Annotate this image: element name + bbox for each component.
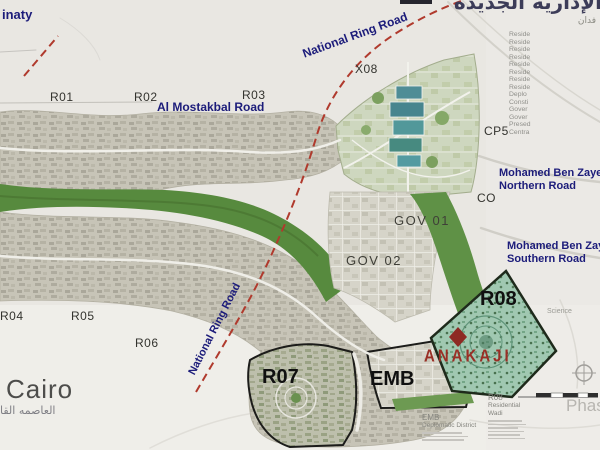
micro-text-line [488, 431, 524, 433]
micro-text-line [488, 427, 518, 429]
road-label-mbz-northern: Mohamed Ben Zayed Northern Road [499, 167, 600, 193]
district-label-r07: R07 [262, 366, 299, 389]
micro-text-line [488, 434, 520, 436]
road-label-line: Mohamed Ben Zayed [507, 240, 600, 253]
district-label-cp5: CP5 [484, 124, 509, 138]
micro-text-line [422, 436, 468, 438]
legend-item: Gover [509, 106, 599, 114]
cairo-label: Cairo [6, 374, 73, 405]
micro-text-line [422, 432, 462, 434]
district-label-r08: R08 [480, 288, 517, 311]
footnote-subtitle: Residential Wadi [488, 402, 536, 418]
footnote-r08: R08 Residential Wadi [488, 393, 536, 441]
arabic-title: الإدارية الجديدة [454, 0, 600, 14]
legend-item: Reside [509, 54, 599, 62]
legend-item: Gover [509, 114, 599, 122]
district-label-x08: X08 [355, 62, 378, 76]
footnote-emb: EMB Deplomatic District [422, 413, 478, 443]
legend-list: Reside Reside Reside Reside Reside Resid… [509, 31, 599, 136]
district-label-gov01: GOV 01 [394, 213, 450, 228]
district-label-r06: R06 [135, 336, 159, 350]
district-label-r04: R04 [0, 309, 24, 323]
district-label-r01: R01 [50, 90, 74, 104]
road-label-national-ring-mid: National Ring Road [186, 281, 243, 377]
legend-item: Reside [509, 46, 599, 54]
footnote-title: R08 [488, 393, 536, 402]
legend-item: Presed [509, 121, 599, 129]
district-label-r03: R03 [242, 88, 266, 102]
micro-text-line [488, 424, 526, 426]
legend-item: Consti [509, 99, 599, 107]
road-label-line: Mohamed Ben Zayed [499, 167, 600, 180]
legend-item: Reside [509, 39, 599, 47]
legend-item: Reside [509, 76, 599, 84]
road-label-line: Southern Road [507, 253, 600, 266]
micro-text-line [488, 438, 525, 440]
district-label-co: CO [477, 191, 496, 205]
map-canvas[interactable]: inaty الإدارية الجديدة فدان Reside Resid… [0, 0, 600, 450]
legend-item: Reside [509, 31, 599, 39]
science-label: Science [547, 308, 572, 315]
district-label-r05: R05 [71, 309, 95, 323]
arabic-area-note: فدان [578, 16, 596, 26]
micro-text-line [488, 420, 522, 422]
legend-item: Reside [509, 84, 599, 92]
road-label-line: Northern Road [499, 180, 600, 193]
road-label-mbz-southern: Mohamed Ben Zayed Southern Road [507, 240, 600, 266]
legend-item: Deplo [509, 91, 599, 99]
legend-item: Reside [509, 61, 599, 69]
road-label-national-ring-top: National Ring Road [301, 10, 410, 61]
district-label-emb: EMB [370, 368, 414, 391]
legend-item: Reside [509, 69, 599, 77]
micro-text-line [422, 439, 464, 441]
footnote-subtitle: Deplomatic District [422, 422, 478, 430]
district-label-r02: R02 [134, 90, 158, 104]
madinaty-label: inaty [2, 7, 32, 22]
legend-item: Centra [509, 129, 599, 137]
phase-label: Phase [566, 396, 600, 416]
cairo-arabic-label: العاصمه القا [0, 404, 55, 417]
road-label-mostakbal: Al Mostakbal Road [157, 100, 264, 114]
district-label-gov02: GOV 02 [346, 253, 402, 268]
footnote-title: EMB [422, 413, 478, 422]
anakaji-logo: ANAKAJI [424, 347, 512, 367]
